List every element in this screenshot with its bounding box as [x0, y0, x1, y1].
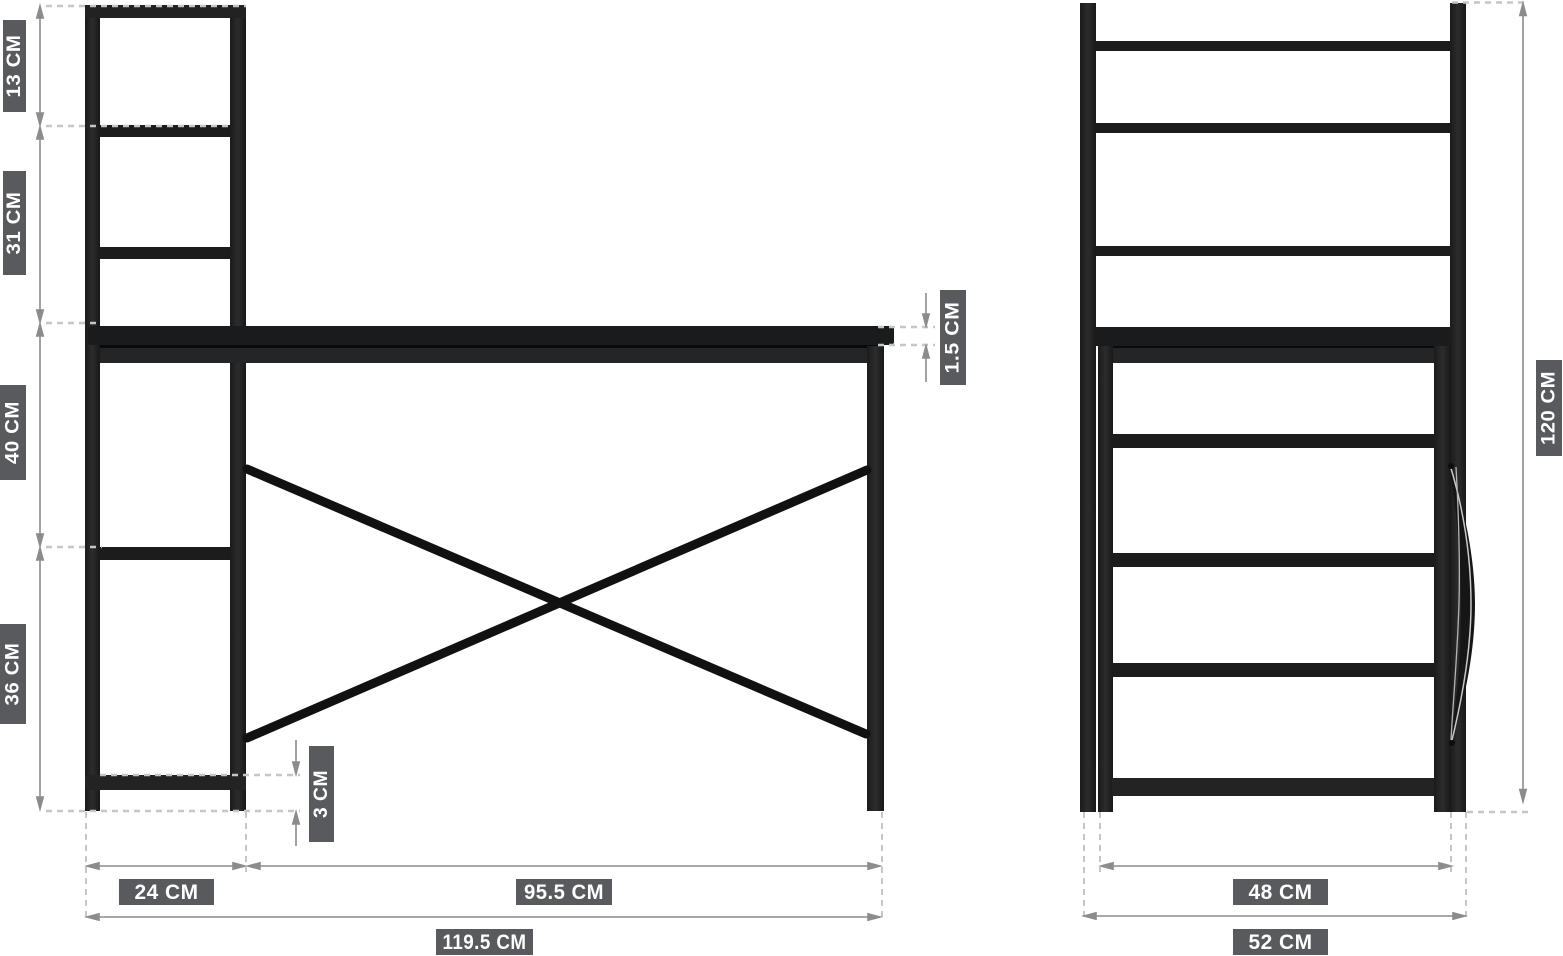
svg-text:24 CM: 24 CM	[135, 881, 199, 904]
svg-text:13 CM: 13 CM	[4, 35, 25, 98]
svg-text:1.5 CM: 1.5 CM	[943, 302, 964, 374]
svg-text:40 CM: 40 CM	[3, 401, 24, 464]
svg-text:48 CM: 48 CM	[1249, 881, 1313, 904]
svg-text:52 CM: 52 CM	[1249, 931, 1313, 954]
svg-text:3 CM: 3 CM	[311, 770, 332, 818]
svg-text:95.5 CM: 95.5 CM	[524, 881, 604, 904]
svg-text:31 CM: 31 CM	[4, 192, 25, 255]
svg-text:120 CM: 120 CM	[1539, 371, 1560, 445]
svg-text:36 CM: 36 CM	[3, 643, 24, 706]
svg-text:119.5 CM: 119.5 CM	[443, 931, 527, 954]
